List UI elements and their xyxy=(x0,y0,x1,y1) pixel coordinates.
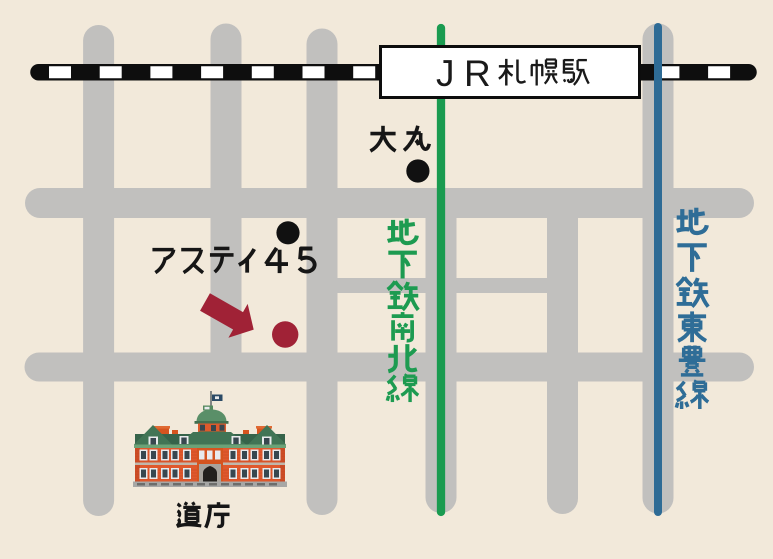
svg-text:J: J xyxy=(436,53,455,94)
svg-text:R: R xyxy=(464,53,491,94)
